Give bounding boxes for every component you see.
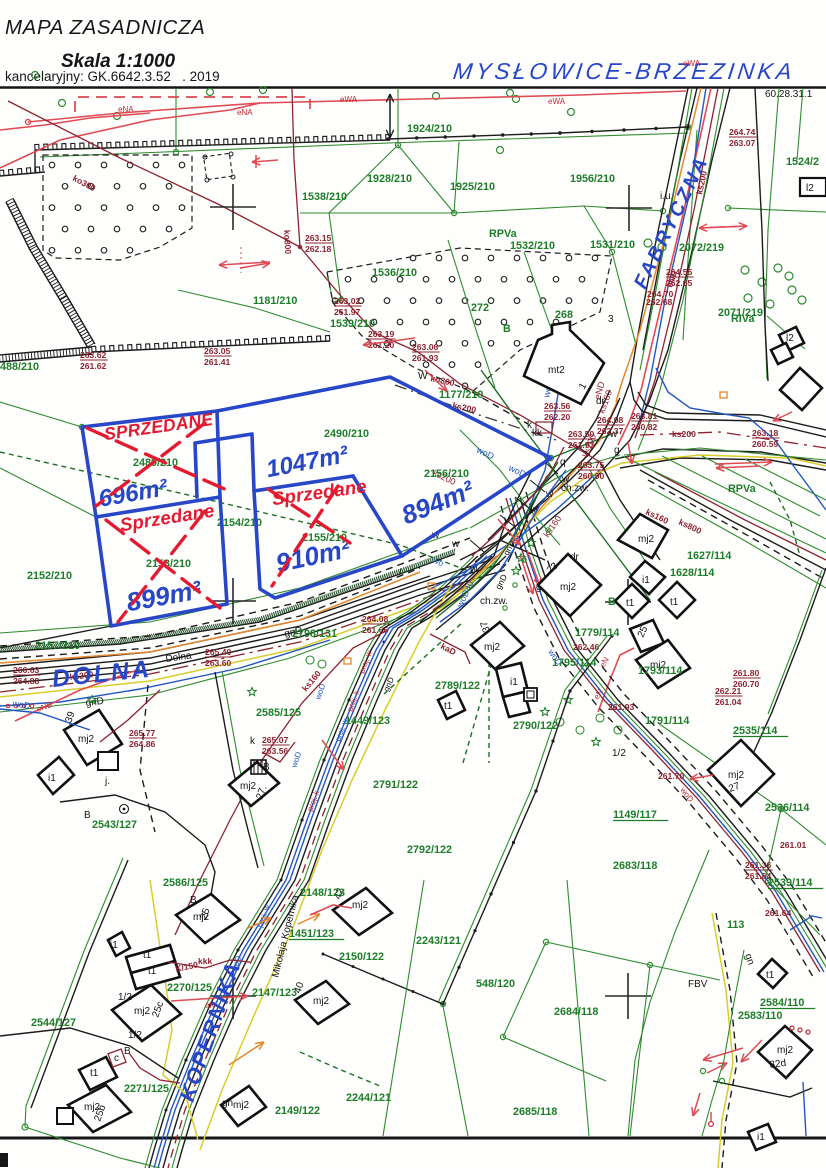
svg-text:c: c xyxy=(114,1053,119,1064)
svg-text:261.70: 261.70 xyxy=(658,771,685,781)
svg-text:263.02: 263.02 xyxy=(334,296,361,306)
svg-text:263.62: 263.62 xyxy=(80,350,107,360)
svg-text:265.77: 265.77 xyxy=(129,728,156,738)
svg-text:dr: dr xyxy=(596,396,606,407)
svg-text:264.74: 264.74 xyxy=(729,127,756,137)
svg-text:t1: t1 xyxy=(670,597,679,608)
svg-text:1538/210: 1538/210 xyxy=(302,191,347,203)
svg-text:MYSŁOWICE-BRZEZINKA: MYSŁOWICE-BRZEZINKA xyxy=(452,58,797,84)
svg-text:2791/122: 2791/122 xyxy=(373,779,418,791)
svg-text:RPVa: RPVa xyxy=(489,228,518,240)
svg-text:2270/125: 2270/125 xyxy=(167,982,212,994)
svg-text:2536/114: 2536/114 xyxy=(765,802,809,814)
svg-text:B: B xyxy=(608,596,616,608)
svg-text:263.07: 263.07 xyxy=(729,138,756,148)
svg-text:1449/123: 1449/123 xyxy=(345,715,390,727)
svg-text:263.60: 263.60 xyxy=(205,658,232,668)
svg-text:q: q xyxy=(560,457,566,468)
svg-text:2535/114: 2535/114 xyxy=(733,725,777,737)
svg-text:263.19: 263.19 xyxy=(368,329,395,339)
svg-text:RPVa: RPVa xyxy=(728,483,757,495)
svg-text:2149/122: 2149/122 xyxy=(275,1105,320,1117)
svg-text:260.59: 260.59 xyxy=(752,439,779,449)
svg-text:263.75: 263.75 xyxy=(578,460,605,470)
svg-text:2539/114: 2539/114 xyxy=(768,877,812,889)
svg-text:mj2: mj2 xyxy=(134,1006,151,1017)
svg-text:2544/127: 2544/127 xyxy=(31,1017,76,1029)
svg-text:1795/114: 1795/114 xyxy=(552,657,596,669)
svg-text:1627/114: 1627/114 xyxy=(687,550,731,562)
svg-text:B: B xyxy=(263,762,270,773)
svg-text:2152/210: 2152/210 xyxy=(27,570,72,582)
svg-text:2543/127: 2543/127 xyxy=(92,819,137,831)
svg-text:RIVa: RIVa xyxy=(731,313,755,325)
svg-text:1531/210: 1531/210 xyxy=(590,239,635,251)
svg-text:1451/123: 1451/123 xyxy=(289,928,334,940)
svg-text:2157/210: 2157/210 xyxy=(35,640,80,652)
svg-text:2244/121: 2244/121 xyxy=(346,1092,391,1104)
svg-text:1532/210: 1532/210 xyxy=(510,240,555,252)
svg-text:263.81: 263.81 xyxy=(631,411,658,421)
svg-text:ch.zw.: ch.zw. xyxy=(480,596,508,607)
svg-text:264.88: 264.88 xyxy=(13,676,40,686)
svg-text:2586/125: 2586/125 xyxy=(163,877,208,889)
svg-text:264.55: 264.55 xyxy=(666,267,693,277)
svg-text:eWA: eWA xyxy=(683,59,701,68)
svg-text:mj2: mj2 xyxy=(484,642,501,653)
svg-text:i1: i1 xyxy=(510,677,518,688)
svg-text:2148/123: 2148/123 xyxy=(300,887,345,899)
svg-text:261.80: 261.80 xyxy=(733,668,760,678)
svg-text:w: w xyxy=(469,564,478,575)
svg-text:2584/110: 2584/110 xyxy=(760,997,804,1009)
svg-text:l2: l2 xyxy=(806,183,814,194)
svg-text:262.37: 262.37 xyxy=(597,426,624,436)
svg-text:60.28.31.1: 60.28.31.1 xyxy=(765,89,813,100)
svg-text:2798/131: 2798/131 xyxy=(292,628,337,640)
svg-text:ks200: ks200 xyxy=(672,429,696,439)
svg-text:mj2: mj2 xyxy=(78,734,95,745)
svg-text:261.62: 261.62 xyxy=(80,361,107,371)
svg-text:260.82: 260.82 xyxy=(631,422,658,432)
svg-text:kkk: kkk xyxy=(198,956,213,966)
svg-text:1536/210: 1536/210 xyxy=(372,267,417,279)
svg-text:kk: kk xyxy=(532,428,543,439)
svg-text:261.64: 261.64 xyxy=(765,908,792,918)
svg-text:261.97: 261.97 xyxy=(334,307,361,317)
svg-text:264.08: 264.08 xyxy=(597,415,624,425)
svg-text:FBV: FBV xyxy=(688,979,708,990)
svg-text:263.56: 263.56 xyxy=(544,401,571,411)
svg-text:2150/122: 2150/122 xyxy=(339,951,384,963)
svg-text:1181/210: 1181/210 xyxy=(253,295,297,307)
svg-text:1628/114: 1628/114 xyxy=(670,567,714,579)
svg-text:262.20: 262.20 xyxy=(544,412,571,422)
svg-text:j.: j. xyxy=(104,776,110,787)
svg-text:ch.zw.: ch.zw. xyxy=(561,483,589,494)
svg-text:261.04: 261.04 xyxy=(715,697,742,707)
svg-text:2585/125: 2585/125 xyxy=(256,707,301,719)
svg-text:263.05: 263.05 xyxy=(204,346,231,356)
svg-text:1/2: 1/2 xyxy=(612,748,626,759)
svg-text:261.93: 261.93 xyxy=(568,440,595,450)
svg-text:264.70: 264.70 xyxy=(647,289,674,299)
svg-text:2072/219: 2072/219 xyxy=(679,242,724,254)
svg-text:eNA: eNA xyxy=(237,108,253,117)
svg-text:1928/210: 1928/210 xyxy=(367,173,412,185)
svg-text:488/210: 488/210 xyxy=(0,361,39,373)
svg-text:t1: t1 xyxy=(143,950,152,961)
svg-text:262.21: 262.21 xyxy=(715,686,742,696)
svg-text:265.07: 265.07 xyxy=(262,735,289,745)
svg-text:i1: i1 xyxy=(110,940,118,951)
svg-text:261.93: 261.93 xyxy=(608,702,635,712)
svg-text:B: B xyxy=(190,895,197,906)
svg-text:ko800: ko800 xyxy=(282,230,293,255)
svg-text:eNA: eNA xyxy=(118,105,134,114)
svg-text:w: w xyxy=(451,539,460,550)
svg-text:g: g xyxy=(614,445,620,456)
svg-text:263.06: 263.06 xyxy=(412,342,439,352)
svg-text:eWA: eWA xyxy=(340,95,358,104)
svg-text:262.18: 262.18 xyxy=(305,244,332,254)
svg-text:2792/122: 2792/122 xyxy=(407,844,452,856)
svg-text:B: B xyxy=(503,323,511,335)
svg-text:t1: t1 xyxy=(444,701,453,712)
svg-text:t1: t1 xyxy=(766,970,775,981)
svg-text:t1: t1 xyxy=(626,598,635,609)
svg-text:263.15: 263.15 xyxy=(305,233,332,243)
svg-text:2583/110: 2583/110 xyxy=(738,1010,782,1022)
svg-text:mj2: mj2 xyxy=(240,781,257,792)
svg-text:266.63: 266.63 xyxy=(13,665,40,675)
svg-text:w: w xyxy=(545,489,554,500)
svg-text:l2: l2 xyxy=(786,333,794,344)
svg-text:2243/121: 2243/121 xyxy=(416,935,461,947)
svg-text:MAPA ZASADNICZA: MAPA ZASADNICZA xyxy=(5,16,205,39)
svg-text:kancelaryjny: GK.6642.3.52 .: kancelaryjny: GK.6642.3.52 . 2019 xyxy=(5,69,220,84)
svg-text:1956/210: 1956/210 xyxy=(570,173,615,185)
svg-text:272: 272 xyxy=(471,302,489,314)
svg-text:1925/210: 1925/210 xyxy=(450,181,495,193)
svg-text:2683/118: 2683/118 xyxy=(613,860,657,872)
svg-text:261.66: 261.66 xyxy=(362,625,389,635)
svg-text:2789/122: 2789/122 xyxy=(435,680,480,692)
svg-text:i1: i1 xyxy=(48,773,56,784)
svg-text:W: W xyxy=(418,371,428,382)
svg-text:548/120: 548/120 xyxy=(476,978,515,990)
svg-text:1524/2: 1524/2 xyxy=(786,156,819,168)
svg-text:gn: gn xyxy=(222,1098,233,1109)
svg-text:113: 113 xyxy=(727,919,744,931)
svg-text:263.50: 263.50 xyxy=(568,429,595,439)
svg-text:261.41: 261.41 xyxy=(204,357,231,367)
svg-text:i1: i1 xyxy=(642,575,650,586)
svg-text:261.93: 261.93 xyxy=(412,353,439,363)
svg-text:1791/114: 1791/114 xyxy=(645,715,689,727)
svg-text:261.64: 261.64 xyxy=(745,871,772,881)
svg-text:2790/122: 2790/122 xyxy=(513,720,558,732)
svg-text:264.86: 264.86 xyxy=(129,739,156,749)
svg-text:3: 3 xyxy=(608,314,614,325)
svg-text:mj2: mj2 xyxy=(560,582,577,593)
svg-text:B: B xyxy=(84,810,91,821)
svg-text:mj2: mj2 xyxy=(777,1045,794,1056)
svg-text:mj2: mj2 xyxy=(313,996,330,1007)
svg-text:263.18: 263.18 xyxy=(752,428,779,438)
svg-text:260.90: 260.90 xyxy=(578,471,605,481)
svg-text:2147/123: 2147/123 xyxy=(252,987,297,999)
svg-text:1/2: 1/2 xyxy=(128,1030,142,1041)
svg-text:i1: i1 xyxy=(757,1132,765,1143)
svg-text:1793/114: 1793/114 xyxy=(638,665,682,677)
svg-text:mj2: mj2 xyxy=(233,1100,250,1111)
svg-text:268: 268 xyxy=(555,309,573,321)
svg-text:262.65: 262.65 xyxy=(666,278,693,288)
svg-text:mj2: mj2 xyxy=(728,770,745,781)
svg-text:2685/118: 2685/118 xyxy=(513,1106,557,1118)
svg-text:2490/210: 2490/210 xyxy=(324,428,369,440)
svg-text:eWA: eWA xyxy=(548,97,566,106)
svg-text:mt2: mt2 xyxy=(548,365,565,376)
svg-text:t1: t1 xyxy=(90,1068,99,1079)
svg-text:261.01: 261.01 xyxy=(780,840,807,850)
svg-text:261.36: 261.36 xyxy=(745,860,772,870)
svg-text:1/2: 1/2 xyxy=(118,992,132,1003)
svg-text:1149/117: 1149/117 xyxy=(613,809,657,821)
svg-text:mj2: mj2 xyxy=(638,534,655,545)
svg-text:1779/114: 1779/114 xyxy=(575,627,619,639)
svg-text:t1: t1 xyxy=(148,966,157,977)
svg-text:265.40: 265.40 xyxy=(205,647,232,657)
svg-text:2684/118: 2684/118 xyxy=(554,1006,598,1018)
svg-text:82d: 82d xyxy=(769,1058,787,1071)
svg-text:2271/125: 2271/125 xyxy=(124,1083,169,1095)
svg-text:1924/210: 1924/210 xyxy=(407,123,452,135)
svg-text:mj2: mj2 xyxy=(352,900,369,911)
svg-text:264.08: 264.08 xyxy=(362,614,389,624)
